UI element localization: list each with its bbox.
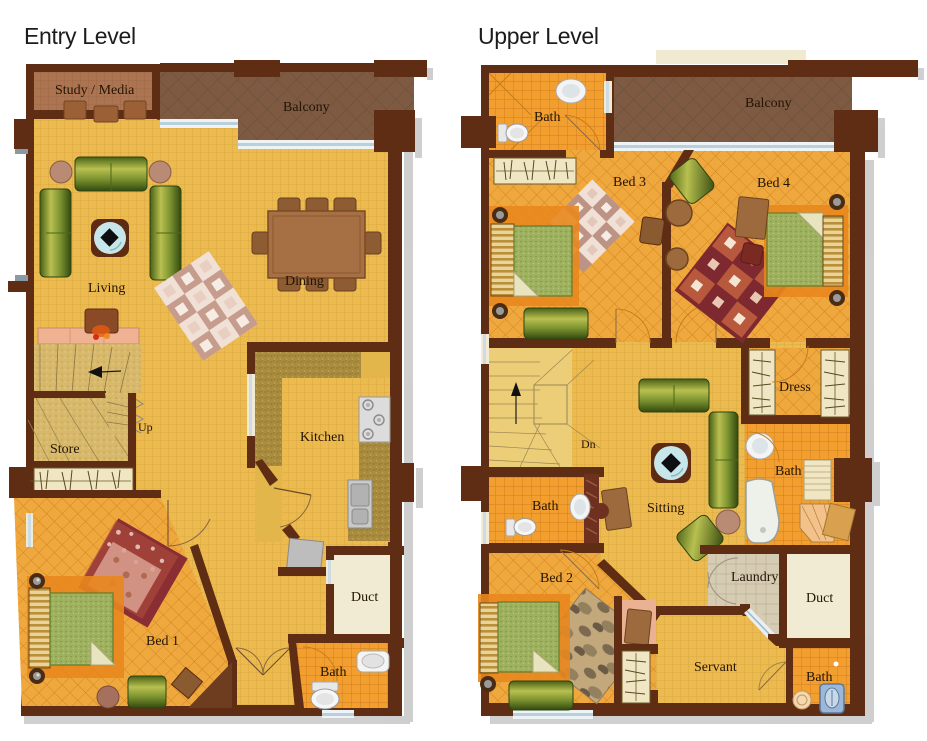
svg-text:Bed 4: Bed 4 <box>757 176 790 191</box>
svg-text:Bath: Bath <box>806 670 832 685</box>
svg-text:Dress: Dress <box>779 380 811 395</box>
svg-text:Study / Media: Study / Media <box>55 83 135 98</box>
svg-text:Balcony: Balcony <box>283 100 330 115</box>
svg-text:Bed 1: Bed 1 <box>146 634 179 649</box>
svg-text:Laundry: Laundry <box>731 570 778 585</box>
svg-text:Bath: Bath <box>534 110 560 125</box>
svg-text:Store: Store <box>50 442 80 457</box>
svg-text:Bed 2: Bed 2 <box>540 571 573 586</box>
svg-text:Bath: Bath <box>775 464 801 479</box>
svg-text:Dn: Dn <box>581 437 596 451</box>
svg-text:Upper Level: Upper Level <box>478 23 599 49</box>
svg-text:Up: Up <box>138 420 153 434</box>
svg-text:Bath: Bath <box>532 499 558 514</box>
svg-text:Dining: Dining <box>285 274 324 289</box>
svg-text:Entry Level: Entry Level <box>24 23 136 49</box>
svg-text:Sitting: Sitting <box>647 501 684 516</box>
svg-text:Living: Living <box>88 281 125 296</box>
svg-text:Bed 3: Bed 3 <box>613 175 646 190</box>
svg-text:Bath: Bath <box>320 665 346 680</box>
svg-text:Duct: Duct <box>806 591 833 606</box>
svg-text:Servant: Servant <box>694 660 737 675</box>
svg-text:Duct: Duct <box>351 590 378 605</box>
svg-text:Balcony: Balcony <box>745 96 792 111</box>
svg-text:Kitchen: Kitchen <box>300 430 344 445</box>
